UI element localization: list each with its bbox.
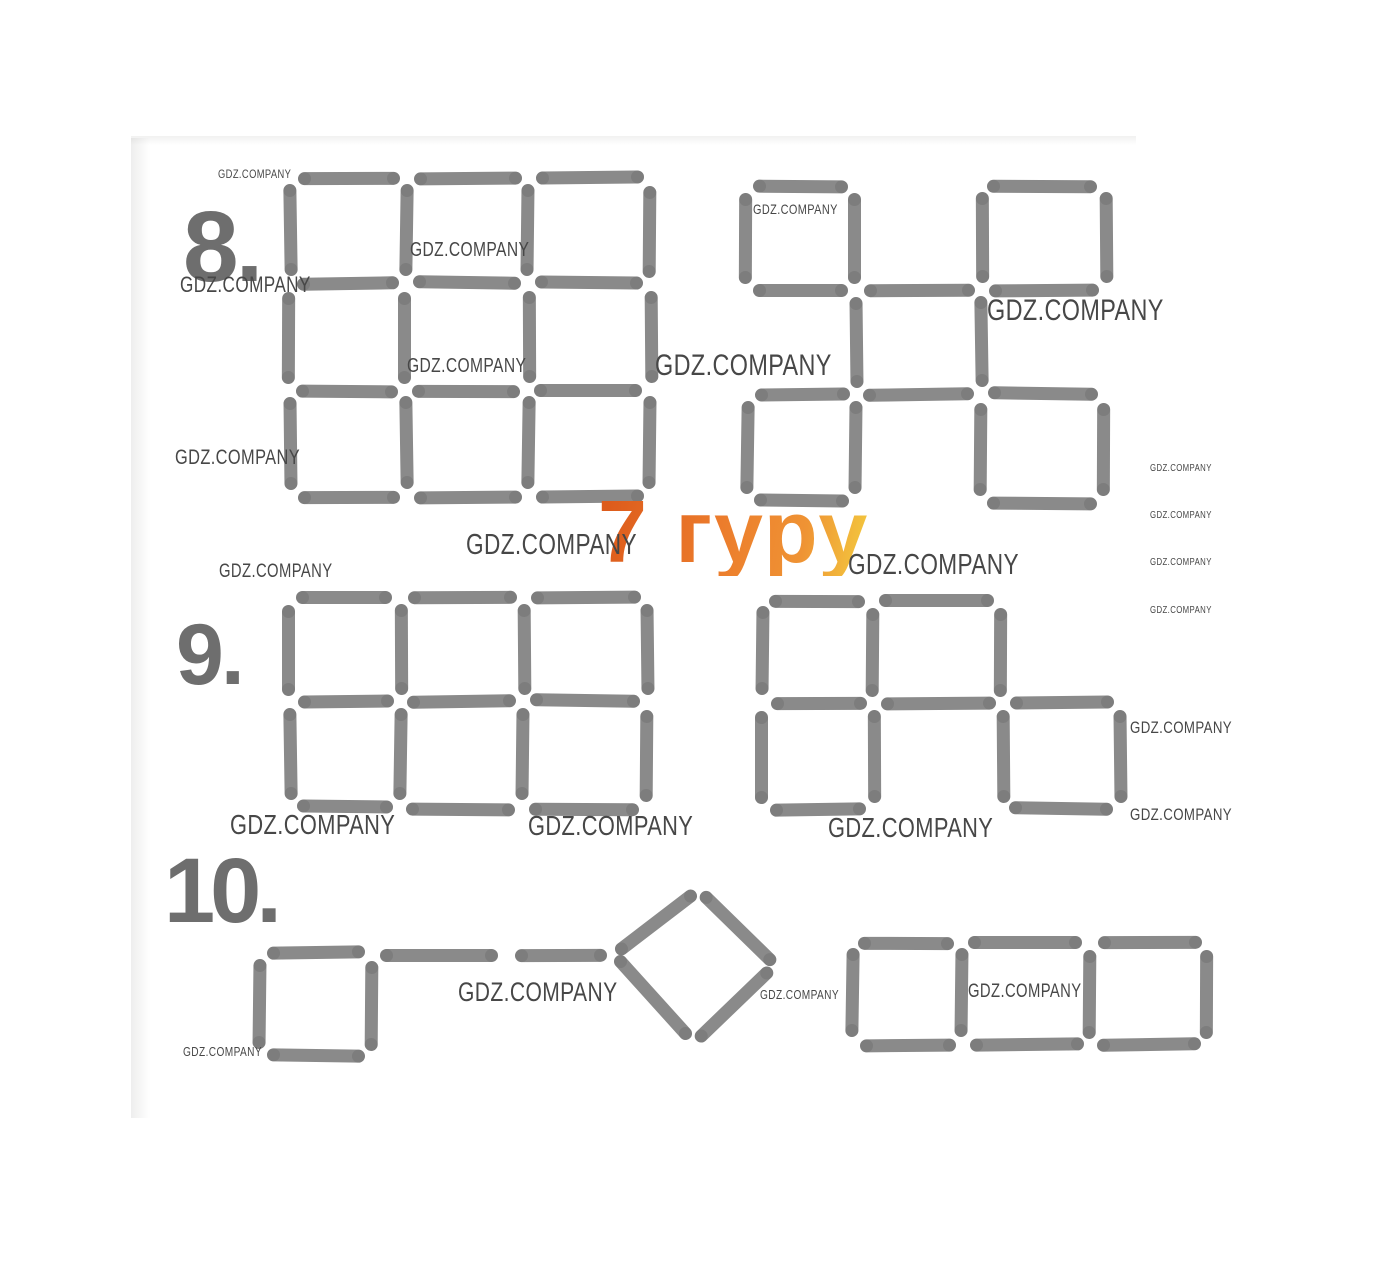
matchstick xyxy=(298,172,400,185)
matchstick xyxy=(845,948,859,1037)
matchstick xyxy=(868,710,881,803)
gdz-company-watermark: GDZ.COMPANY xyxy=(218,168,291,180)
matchstick xyxy=(407,694,516,709)
matchstick xyxy=(1082,950,1096,1039)
matchstick xyxy=(534,384,642,397)
matchstick xyxy=(395,604,408,695)
matchstick xyxy=(988,387,1098,402)
gdz-company-watermark: GDZ.COMPANY xyxy=(1150,558,1212,568)
gdz-company-watermark: GDZ.COMPANY xyxy=(1150,464,1212,474)
matchstick xyxy=(531,590,641,604)
matchstick xyxy=(267,945,365,960)
matchstick xyxy=(516,708,530,800)
matchstick xyxy=(406,802,515,816)
matchstick xyxy=(739,193,752,284)
matchstick xyxy=(393,708,407,800)
matchstick xyxy=(530,694,640,709)
matchstick xyxy=(860,1038,956,1052)
matchstick xyxy=(612,886,699,957)
gdz-company-watermark: GDZ.COMPANY xyxy=(1130,806,1232,823)
gdz-company-watermark: GDZ.COMPANY xyxy=(828,814,993,842)
matchstick xyxy=(297,276,399,291)
matchstick xyxy=(858,936,954,949)
matchstick xyxy=(642,186,656,278)
gdz-company-watermark: GDZ.COMPANY xyxy=(180,274,311,296)
matchstick xyxy=(1098,936,1202,949)
gdz-company-watermark: GDZ.COMPANY xyxy=(407,356,526,376)
matchstick xyxy=(296,384,398,398)
seven-guru-logo: 7 гуру xyxy=(598,488,869,576)
matchstick xyxy=(769,594,865,607)
matchstick xyxy=(968,936,1082,949)
page-edge-left xyxy=(131,138,150,1118)
matchstick xyxy=(865,608,879,697)
matchstick xyxy=(298,695,394,709)
matchstick xyxy=(413,276,521,291)
puzzle-10-label: 10. xyxy=(164,845,277,937)
matchstick xyxy=(267,1049,365,1064)
gdz-company-watermark: GDZ.COMPANY xyxy=(458,979,618,1006)
matchstick xyxy=(973,403,987,496)
matchstick xyxy=(380,949,498,962)
matchstick xyxy=(994,608,1007,697)
matchstick xyxy=(1099,192,1113,283)
matchstick xyxy=(515,949,607,962)
matchstick xyxy=(697,888,779,969)
matchstick xyxy=(282,605,295,696)
matchstick xyxy=(639,710,653,802)
matchstick xyxy=(1097,403,1110,496)
matchstick xyxy=(863,387,974,402)
matchstick xyxy=(692,964,776,1045)
gdz-company-watermark: GDZ.COMPANY xyxy=(528,812,693,840)
matchstick xyxy=(755,711,768,804)
matchstick xyxy=(408,591,517,604)
gdz-company-watermark: GDZ.COMPANY xyxy=(968,982,1082,1001)
gdz-company-watermark: GDZ.COMPANY xyxy=(1150,511,1212,521)
matchstick xyxy=(879,594,994,607)
gdz-company-watermark: GDZ.COMPANY xyxy=(753,202,838,216)
gdz-company-watermark: GDZ.COMPANY xyxy=(1130,719,1232,736)
matchstick xyxy=(753,284,848,297)
matchstick xyxy=(850,297,864,388)
puzzle-9-label: 9. xyxy=(176,612,242,698)
matchstick xyxy=(521,396,535,489)
matchstick xyxy=(1009,802,1113,817)
matchstick xyxy=(848,193,861,284)
gdz-company-watermark: GDZ.COMPANY xyxy=(1150,606,1212,616)
matchstick xyxy=(641,604,655,695)
matchstick xyxy=(881,696,996,710)
matchstick xyxy=(536,171,644,185)
gdz-company-watermark: GDZ.COMPANY xyxy=(183,1045,262,1058)
matchstick xyxy=(517,604,531,695)
gdz-company-watermark: GDZ.COMPANY xyxy=(175,447,300,468)
matchstick xyxy=(755,388,850,402)
gdz-company-watermark: GDZ.COMPANY xyxy=(848,551,1019,580)
matchstick xyxy=(987,179,1097,192)
matchstick xyxy=(771,697,867,710)
matchstick xyxy=(283,708,297,800)
gdz-company-watermark: GDZ.COMPANY xyxy=(760,988,839,1001)
matchstick xyxy=(283,184,297,276)
matchstick xyxy=(756,606,770,695)
matchstick xyxy=(753,180,848,194)
matchstick xyxy=(970,1037,1084,1051)
matchstick xyxy=(298,491,400,504)
matchstick xyxy=(284,397,298,490)
matchstick xyxy=(414,490,522,504)
matchstick xyxy=(740,401,754,494)
matchstick xyxy=(412,384,520,397)
matchstick xyxy=(1097,1037,1201,1052)
matchstick xyxy=(955,948,969,1037)
gdz-company-watermark: GDZ.COMPANY xyxy=(655,351,832,381)
matchstick xyxy=(399,396,413,489)
gdz-company-watermark: GDZ.COMPANY xyxy=(410,240,529,260)
matchstick xyxy=(849,401,863,494)
matchstick xyxy=(364,961,378,1051)
matchstick xyxy=(643,396,657,489)
matchstick xyxy=(399,184,413,276)
page-edge-top xyxy=(131,136,1136,145)
gdz-company-watermark: GDZ.COMPANY xyxy=(987,296,1164,326)
matchstick xyxy=(996,710,1010,803)
matchstick xyxy=(296,591,392,604)
gdz-company-watermark: GDZ.COMPANY xyxy=(230,811,395,839)
matchstick xyxy=(282,292,295,384)
matchstick xyxy=(611,953,694,1043)
matchstick xyxy=(1114,710,1128,803)
gdz-company-watermark: GDZ.COMPANY xyxy=(219,562,333,581)
matchstick xyxy=(987,496,1097,510)
matchstick xyxy=(521,184,535,276)
scanned-worksheet: 8. 9. 10. 7 гуру GDZ.COMPANYGDZ.COMPANYG… xyxy=(0,0,1376,1261)
gdz-company-watermark: GDZ.COMPANY xyxy=(466,531,637,560)
matchstick xyxy=(414,171,522,185)
matchstick xyxy=(976,192,989,283)
matchstick xyxy=(535,275,643,289)
matchstick xyxy=(864,284,975,297)
matchstick xyxy=(1010,696,1114,710)
matchstick xyxy=(1200,950,1213,1039)
matchstick xyxy=(253,959,267,1049)
